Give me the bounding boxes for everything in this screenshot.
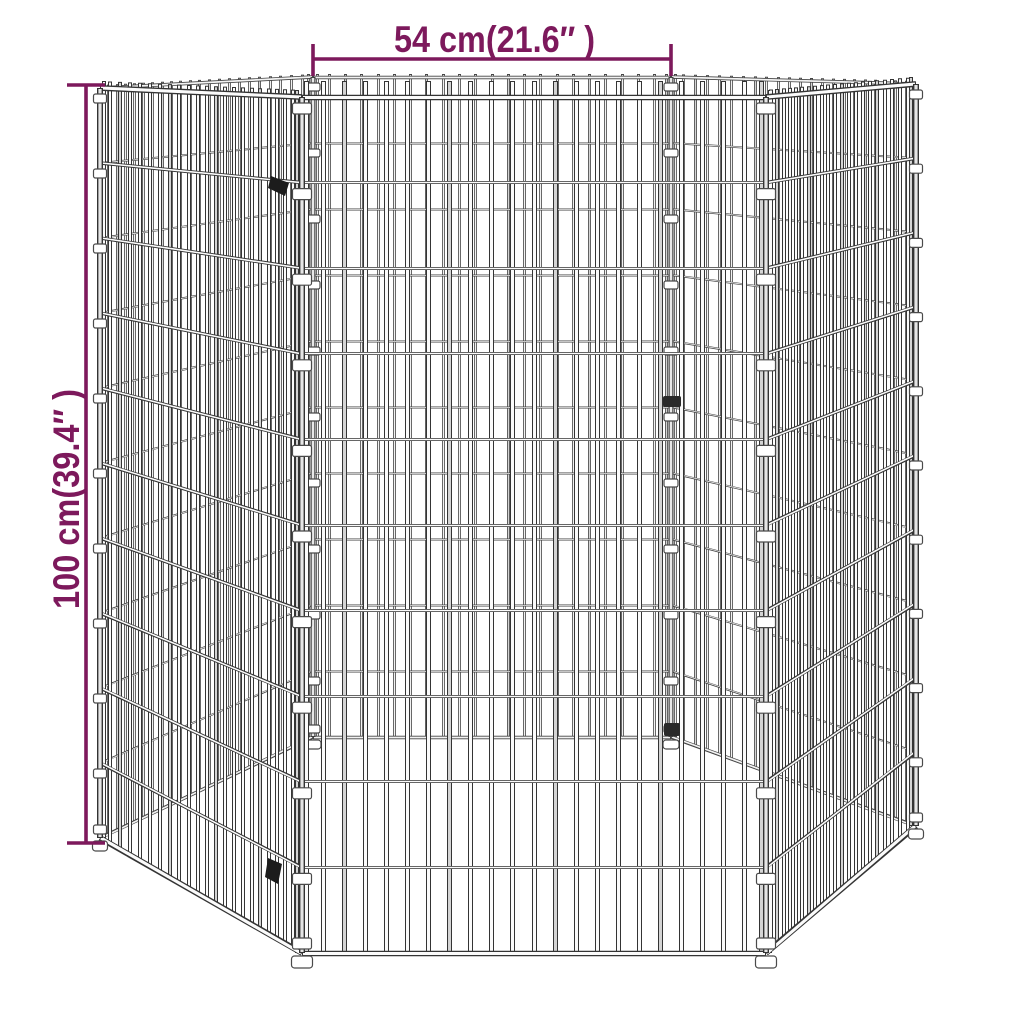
svg-text:54 cm(21.6″ ): 54 cm(21.6″ ): [394, 19, 595, 60]
svg-text:100 cm(39.4″ ): 100 cm(39.4″ ): [46, 389, 87, 609]
